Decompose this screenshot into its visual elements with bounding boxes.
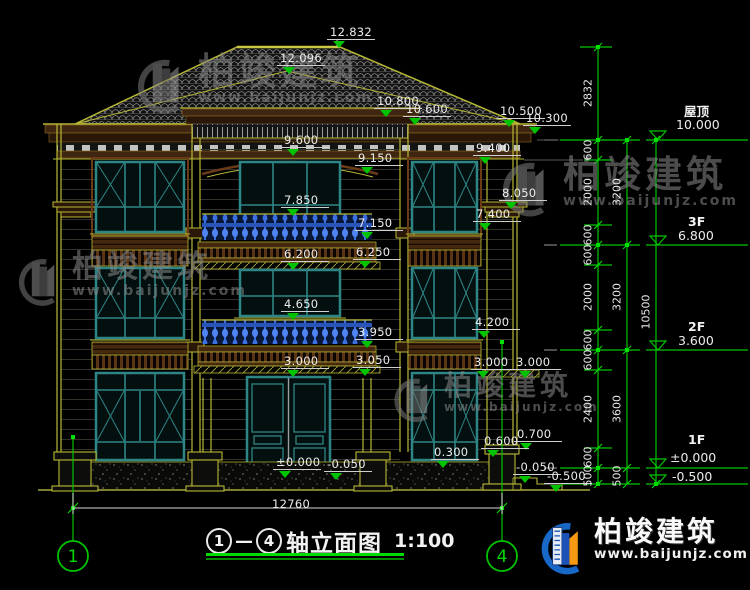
title-underline (206, 553, 404, 556)
drawing-scale: 1:100 (394, 530, 454, 552)
axis-bubble-number: 1 (68, 547, 79, 567)
axis-bubble-number: 4 (497, 547, 508, 567)
company-logo: 柏竣建筑 www.baijunjz.com (533, 517, 748, 579)
company-name: 柏竣建筑 (594, 517, 748, 546)
cad-elevation-screenshot: 柏竣建筑 www.baijunjz.com 柏竣建筑 www.baijunjz.… (0, 0, 750, 590)
axis-range-dash: — (235, 531, 253, 552)
company-url: www.baijunjz.com (594, 546, 748, 562)
axis-to-bubble: 4 (256, 528, 282, 554)
axis-from-bubble: 1 (206, 528, 232, 554)
title-underline-2 (206, 558, 404, 560)
axis-bubbles-layer: 14 (0, 0, 750, 590)
company-logo-icon (533, 517, 589, 579)
